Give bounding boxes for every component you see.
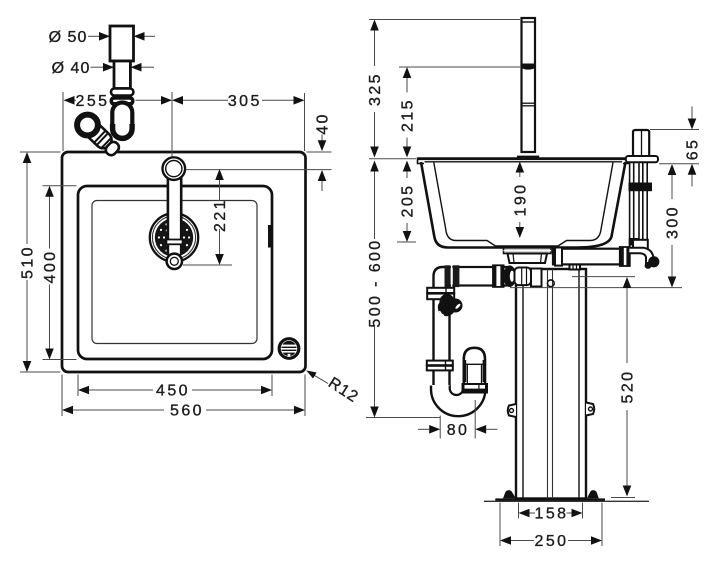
svg-text:221: 221 <box>212 198 229 232</box>
svg-text:Ø 40: Ø 40 <box>52 60 91 77</box>
svg-text:400: 400 <box>42 250 59 284</box>
svg-text:510: 510 <box>20 245 37 279</box>
svg-text:450: 450 <box>156 383 190 400</box>
svg-text:255: 255 <box>76 93 110 110</box>
svg-text:520: 520 <box>620 370 637 404</box>
svg-text:215: 215 <box>400 98 417 132</box>
svg-text:560: 560 <box>170 403 204 420</box>
svg-text:300: 300 <box>665 205 682 239</box>
svg-text:Ø 50: Ø 50 <box>49 29 88 46</box>
svg-text:205: 205 <box>400 184 417 218</box>
svg-text:80: 80 <box>447 422 470 439</box>
svg-text:65: 65 <box>685 138 702 161</box>
svg-text:500 - 600: 500 - 600 <box>367 238 384 327</box>
svg-text:158: 158 <box>535 506 569 523</box>
svg-text:250: 250 <box>535 533 569 550</box>
svg-text:325: 325 <box>367 72 384 106</box>
svg-text:190: 190 <box>512 183 529 217</box>
svg-text:305: 305 <box>228 93 262 110</box>
svg-text:40: 40 <box>315 112 332 135</box>
